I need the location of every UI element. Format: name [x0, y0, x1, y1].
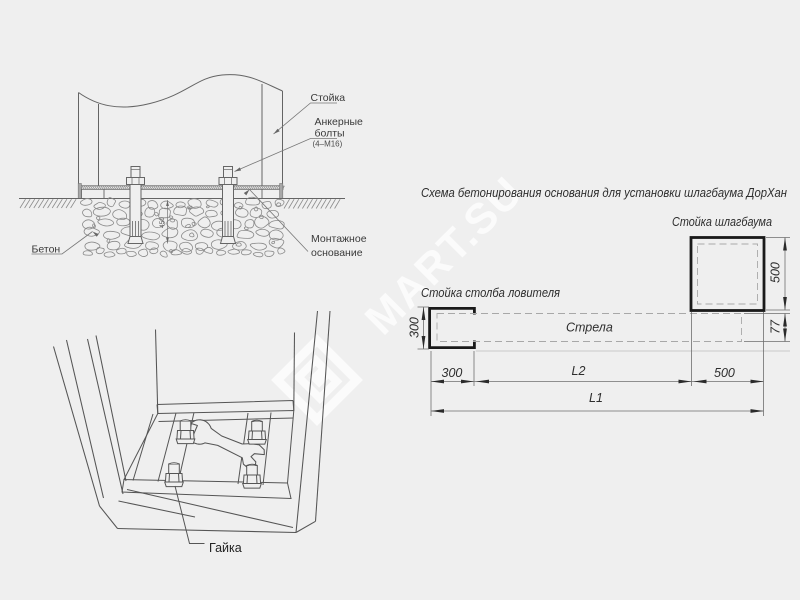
svg-text:основание: основание [311, 247, 363, 259]
svg-text:Стойка шлагбаума: Стойка шлагбаума [672, 215, 772, 229]
svg-text:(4–М16): (4–М16) [313, 140, 343, 149]
svg-text:Стрела: Стрела [566, 321, 613, 335]
svg-text:Монтажное: Монтажное [311, 233, 367, 245]
svg-text:500: 500 [769, 262, 783, 283]
svg-text:500: 500 [714, 366, 735, 380]
svg-text:Стойка: Стойка [311, 92, 346, 104]
svg-text:Схема бетонирования основания: Схема бетонирования основания для устано… [421, 185, 787, 200]
svg-text:300: 300 [408, 317, 422, 338]
svg-text:L1: L1 [589, 391, 603, 405]
svg-text:болты: болты [315, 128, 345, 140]
svg-text:Гайка: Гайка [209, 541, 242, 555]
svg-text:300: 300 [442, 366, 463, 380]
svg-text:77: 77 [769, 319, 783, 334]
svg-text:Анкерные: Анкерные [315, 116, 364, 128]
svg-text:450: 450 [159, 217, 166, 228]
svg-text:L2: L2 [572, 364, 586, 378]
svg-text:Стойка столба ловителя: Стойка столба ловителя [421, 286, 560, 300]
